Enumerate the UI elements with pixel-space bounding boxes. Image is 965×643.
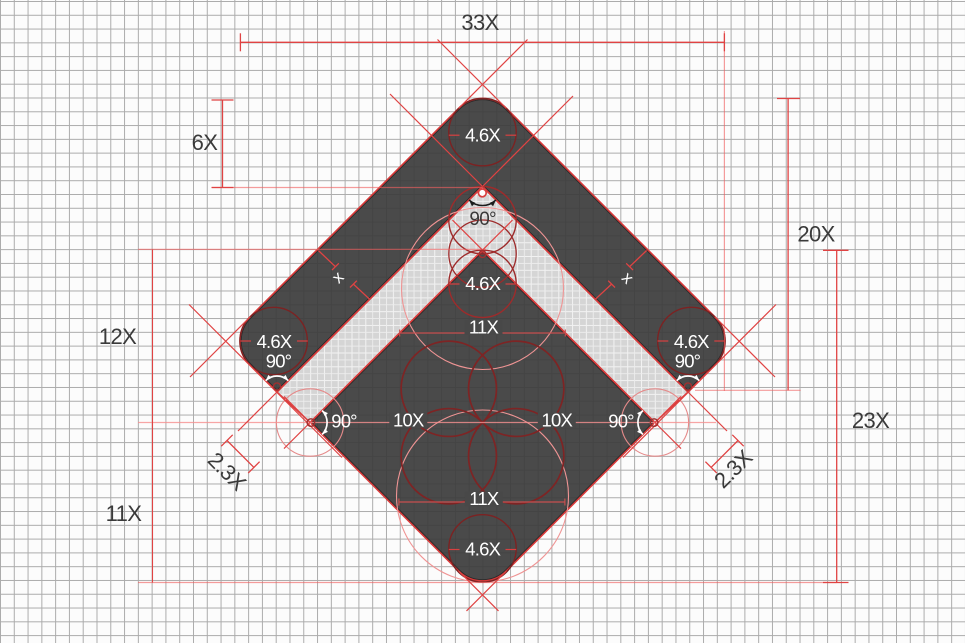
svg-text:11X: 11X [106,501,143,526]
svg-text:11X: 11X [469,317,499,338]
svg-text:4.6X: 4.6X [674,331,709,352]
svg-text:6X: 6X [192,130,219,155]
svg-text:4.6X: 4.6X [257,331,292,352]
svg-text:90°: 90° [675,351,701,372]
svg-text:4.6X: 4.6X [465,124,500,145]
svg-text:90°: 90° [266,351,292,372]
svg-text:10X: 10X [542,409,573,430]
svg-text:4.6X: 4.6X [465,273,500,294]
svg-text:90°: 90° [608,411,634,432]
svg-text:11X: 11X [469,488,499,509]
svg-text:23X: 23X [852,408,890,433]
svg-text:33X: 33X [461,10,499,35]
svg-text:90°: 90° [469,209,496,230]
svg-text:90°: 90° [331,411,357,432]
svg-text:20X: 20X [797,222,835,247]
svg-text:4.6X: 4.6X [465,539,500,560]
svg-text:10X: 10X [393,409,424,430]
svg-text:12X: 12X [99,324,137,349]
